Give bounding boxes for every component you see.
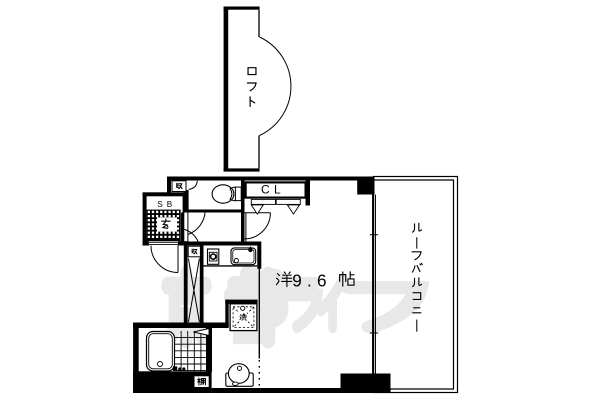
svg-text:CL: CL bbox=[261, 182, 285, 196]
svg-text:SB: SB bbox=[157, 200, 176, 209]
svg-text:9.6: 9.6 bbox=[292, 271, 332, 291]
